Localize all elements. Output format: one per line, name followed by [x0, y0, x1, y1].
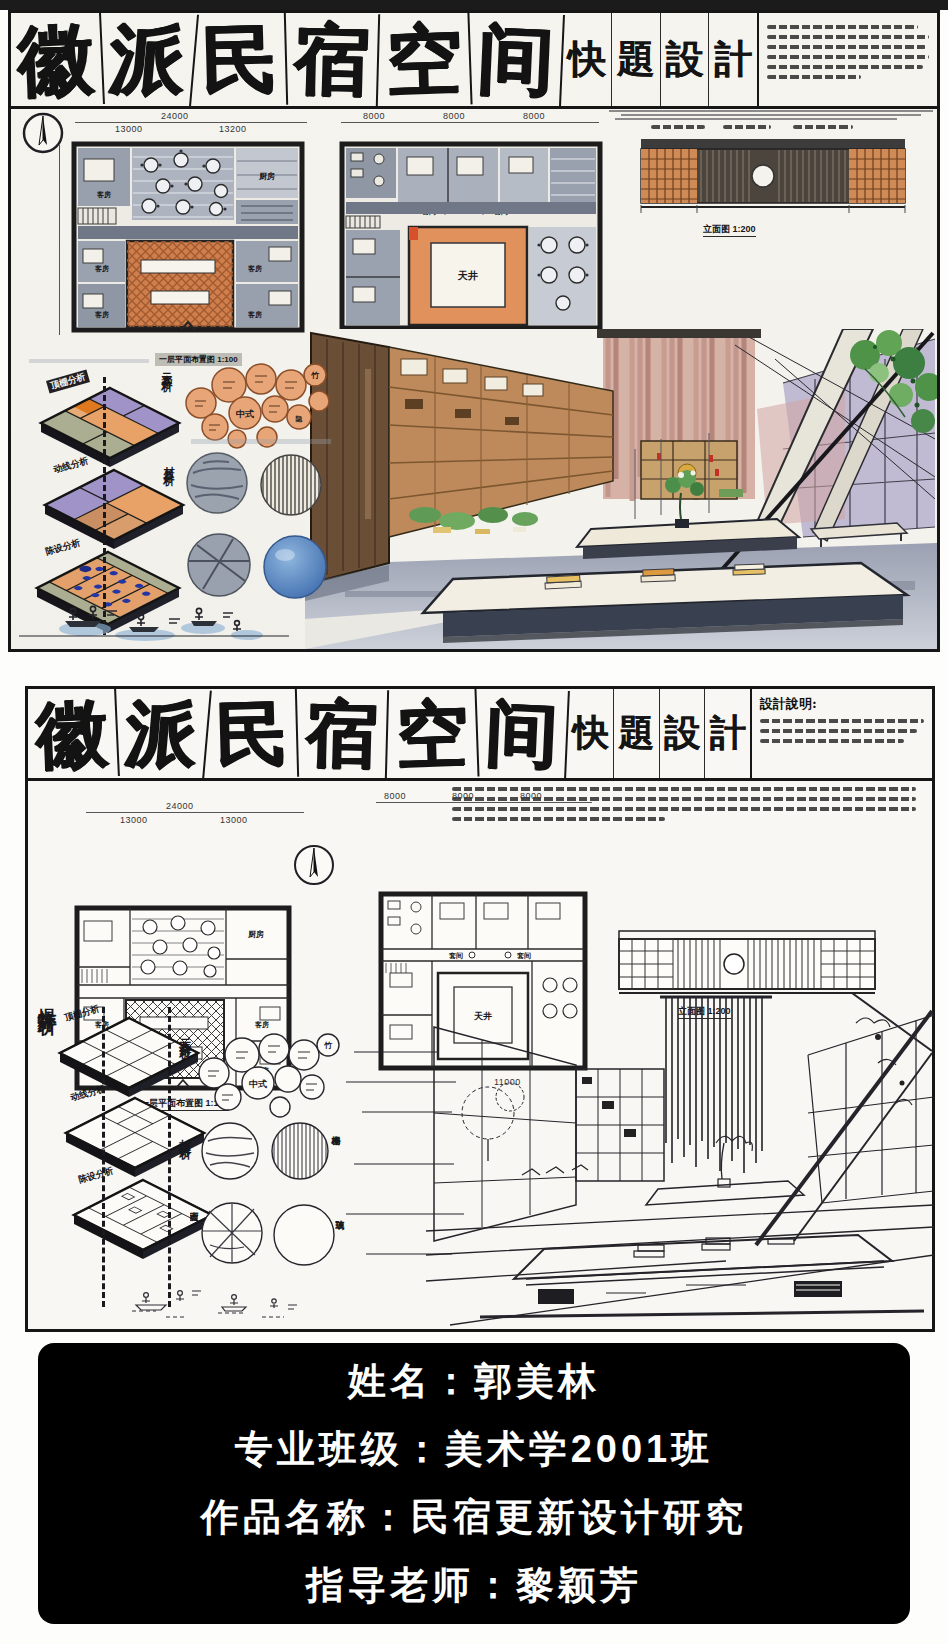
info-line-name: 姓名：郭美林: [348, 1356, 600, 1407]
room-label-kitchen: 厨房: [258, 171, 275, 181]
subtitle-chars: 快 題 設 計: [563, 13, 759, 106]
dimension-text: 8000: [523, 111, 545, 121]
material-label: 木格栅: [331, 1136, 342, 1146]
room-label-suite: 套间: [516, 952, 531, 960]
board1-title-row: 徽 派 民 宿 空 间 快 題 設 計: [11, 13, 937, 109]
board2-title-row: 徽 派 民 宿 空 间 快 題 設 計 設計說明:: [28, 689, 932, 781]
marker-streak: [362, 1111, 452, 1113]
subtitle-char: 題: [612, 13, 661, 106]
info-line-class: 专业班级：美术学2001班: [235, 1424, 714, 1475]
dimension-text: 8000: [452, 791, 474, 801]
marker-streak: [354, 1051, 438, 1053]
subtitle-char: 設: [661, 13, 710, 106]
handwriting-line: [767, 75, 861, 79]
design-board-lineart: 徽 派 民 宿 空 间 快 題 設 計 設計說明:: [25, 686, 935, 1332]
bubble-diagram: 中式 竹: [192, 1021, 344, 1119]
room-label: 客房: [96, 190, 111, 199]
title-char: 间: [469, 11, 565, 108]
handwriting-line: [452, 817, 665, 821]
exploded-axis-line: [102, 1007, 105, 1307]
handwriting-line: [452, 807, 916, 811]
subtitle-char: 計: [705, 689, 750, 778]
analysis-label-elements: 元素分析: [159, 363, 174, 429]
dimension-text: 8000: [384, 791, 406, 801]
room-label: 客房: [94, 310, 109, 319]
room-label: 客房: [247, 310, 262, 319]
subtitle-char: 快: [568, 689, 614, 778]
marker-streak: [354, 1163, 454, 1165]
title-char: 空: [377, 11, 472, 107]
handwriting-line: [760, 729, 917, 733]
perspective-drawing: [426, 993, 934, 1327]
handwriting-line: [767, 45, 926, 49]
floor-plan-upper: 套间 套间 天井: [337, 139, 605, 337]
bubble-label: 竹: [310, 371, 320, 380]
marker-streak: [29, 359, 149, 363]
dimension-text: 24000: [161, 111, 189, 121]
dimension-text: 13200: [219, 124, 247, 134]
marker-streak: [346, 1213, 464, 1215]
info-line-work-title: 作品名称：民宿更新设计研究: [201, 1492, 747, 1543]
handwriting-line: [767, 65, 923, 69]
title-char: 民: [194, 12, 288, 107]
dimension-text: 13000: [120, 815, 148, 825]
bubble-label: 中式: [249, 1079, 267, 1089]
material-label: 大理石: [190, 1212, 200, 1223]
title-char: 空: [386, 687, 479, 779]
dimension-text: 13000: [220, 815, 248, 825]
title-char: 徽: [9, 11, 105, 108]
info-card: 姓名：郭美林 专业班级：美术学2001班 作品名称：民宿更新设计研究 指导老师：…: [38, 1343, 910, 1624]
marker-streak: [191, 439, 331, 444]
handwriting-line: [651, 125, 705, 129]
dimension-text: 24000: [166, 801, 194, 811]
dimension-text: 8000: [363, 111, 385, 121]
dimension-line: [59, 145, 60, 335]
room-label-courtyard: 天井: [457, 270, 478, 281]
subtitle-chars: 快 題 設 計: [568, 689, 752, 778]
room-label-kitchen: 厨房: [247, 929, 264, 939]
dimension-line: [75, 122, 307, 123]
handwriting-line: [767, 25, 918, 29]
handwritten-notes: [759, 13, 937, 106]
room-label-suite: 套间: [448, 952, 463, 960]
title-char: 间: [476, 687, 570, 780]
dimension-line: [86, 812, 304, 813]
subtitle-char: 題: [614, 689, 660, 778]
title-char: 宿: [286, 12, 380, 107]
title-char: 徽: [26, 687, 120, 780]
room-label: 客房: [247, 264, 262, 273]
dimension-text: 8000: [443, 111, 465, 121]
handwriting-line: [760, 739, 904, 743]
design-notes: 設計說明:: [752, 689, 932, 778]
marker-streak: [346, 1081, 456, 1083]
marker-streak: [609, 110, 933, 112]
material-swatches: 木格栅 大理石 玻璃: [190, 1117, 366, 1289]
board1-content: 24000 13000 13200 客房: [11, 109, 937, 649]
title-char: 派: [99, 12, 199, 108]
title-char: 派: [114, 688, 212, 780]
title-char: 民: [207, 688, 299, 779]
ink-sketches: [41, 583, 273, 643]
bubble-label: 中式: [236, 409, 254, 419]
info-line-instructor: 指导老师：黎颖芳: [306, 1560, 642, 1611]
handwriting-line: [767, 55, 929, 59]
bubble-diagram: 中式 竹 隐: [179, 351, 331, 451]
material-label: 玻璃: [335, 1220, 346, 1230]
perspective-rendering: [305, 329, 937, 649]
marker-streak: [19, 635, 289, 637]
handwriting-line: [767, 35, 929, 39]
handwriting-line: [723, 125, 771, 129]
handwriting-line: [793, 125, 853, 129]
board2-content: 24000 13000 13000: [28, 781, 932, 1329]
bubble-label: 隐: [296, 415, 303, 423]
subtitle-char: 快: [563, 13, 612, 106]
elevation-drawing: [614, 927, 880, 1001]
scan-edge: [0, 0, 948, 10]
bubble-label: 竹: [323, 1041, 333, 1050]
dimension-line: [341, 122, 599, 123]
dimension-text: 8000: [520, 791, 542, 801]
analysis-label-materials: 材质分析: [161, 457, 176, 523]
analysis-label-elements: 元素分析: [176, 1029, 193, 1109]
design-board-color: 徽 派 民 宿 空 间 快 題 設 計: [8, 10, 940, 652]
subtitle-char: 計: [709, 13, 757, 106]
dimension-line: [376, 802, 592, 803]
subtitle-char: 設: [660, 689, 706, 778]
room-label: 客房: [94, 264, 109, 273]
handwriting-line: [760, 719, 924, 723]
handwritten-notes: [452, 781, 916, 827]
ink-sketches: [122, 1281, 312, 1325]
marker-streak: [366, 1253, 452, 1255]
marker-streak: [615, 118, 897, 120]
design-notes-title: 設計說明:: [760, 695, 924, 713]
floor-plan-ground: 客房 厨房: [69, 139, 307, 337]
exploded-axis-line: [168, 1007, 171, 1307]
title-char: 宿: [297, 688, 389, 779]
marker-streak: [621, 114, 921, 116]
north-arrow-icon: [292, 843, 336, 887]
elevation-drawing: [635, 135, 911, 219]
dimension-text: 13000: [115, 124, 143, 134]
elevation-caption: 立面图 1:200: [703, 223, 756, 237]
